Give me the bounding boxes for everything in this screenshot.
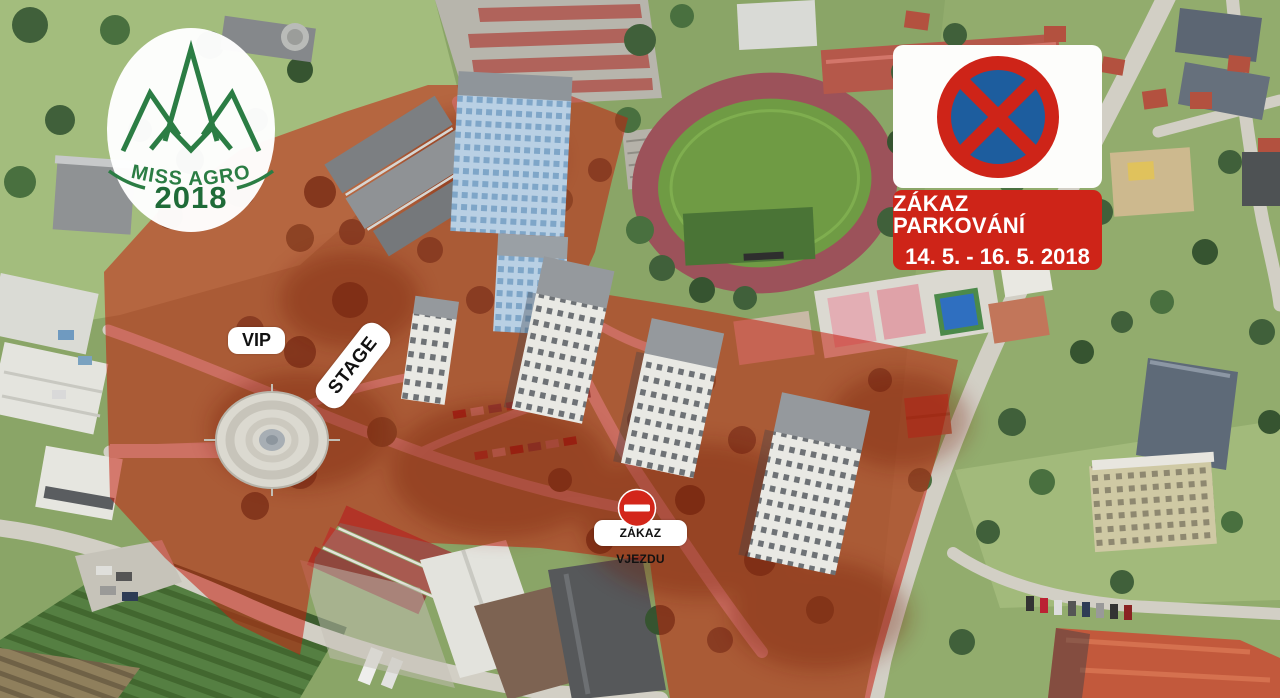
no-stopping-sign-panel [893,45,1102,188]
event-logo: MISS AGRO 2018 [99,23,283,237]
no-parking-dates: 14. 5. - 16. 5. 2018 [905,246,1090,268]
no-parking-text-panel: ZÁKAZ PARKOVÁNÍ 14. 5. - 16. 5. 2018 [893,190,1102,270]
no-parking-title: ZÁKAZ PARKOVÁNÍ [893,193,1102,237]
vip-label: VIP [228,327,285,354]
logo-year: 2018 [155,180,228,215]
no-stopping-sign-icon [936,55,1060,179]
no-parking-sign: ZÁKAZ PARKOVÁNÍ 14. 5. - 16. 5. 2018 [893,45,1102,270]
aerial-map: MISS AGRO 2018 ZÁKAZ PARKOVÁNÍ 14. 5. - … [0,0,1280,698]
no-entry-sign-icon [617,488,657,528]
